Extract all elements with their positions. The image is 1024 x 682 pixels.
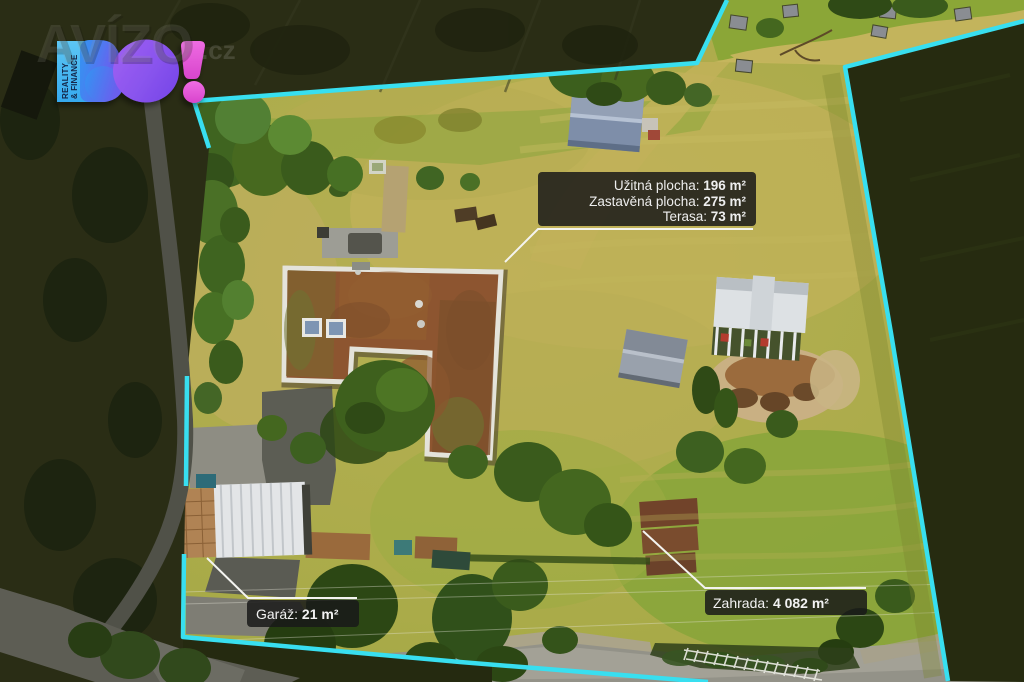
svg-text:Terasa: 73 m²: Terasa: 73 m² — [663, 209, 747, 224]
svg-text:.cz: .cz — [201, 35, 236, 65]
svg-text:Garáž: 21 m²: Garáž: 21 m² — [256, 606, 339, 622]
svg-text:Zastavěná plocha: 275 m²: Zastavěná plocha: 275 m² — [589, 194, 746, 209]
svg-text:Zahrada: 4 082 m²: Zahrada: 4 082 m² — [713, 595, 829, 611]
svg-text:Užitná plocha: 196 m²: Užitná plocha: 196 m² — [614, 178, 747, 193]
svg-text:AVÍZO: AVÍZO — [36, 14, 192, 74]
